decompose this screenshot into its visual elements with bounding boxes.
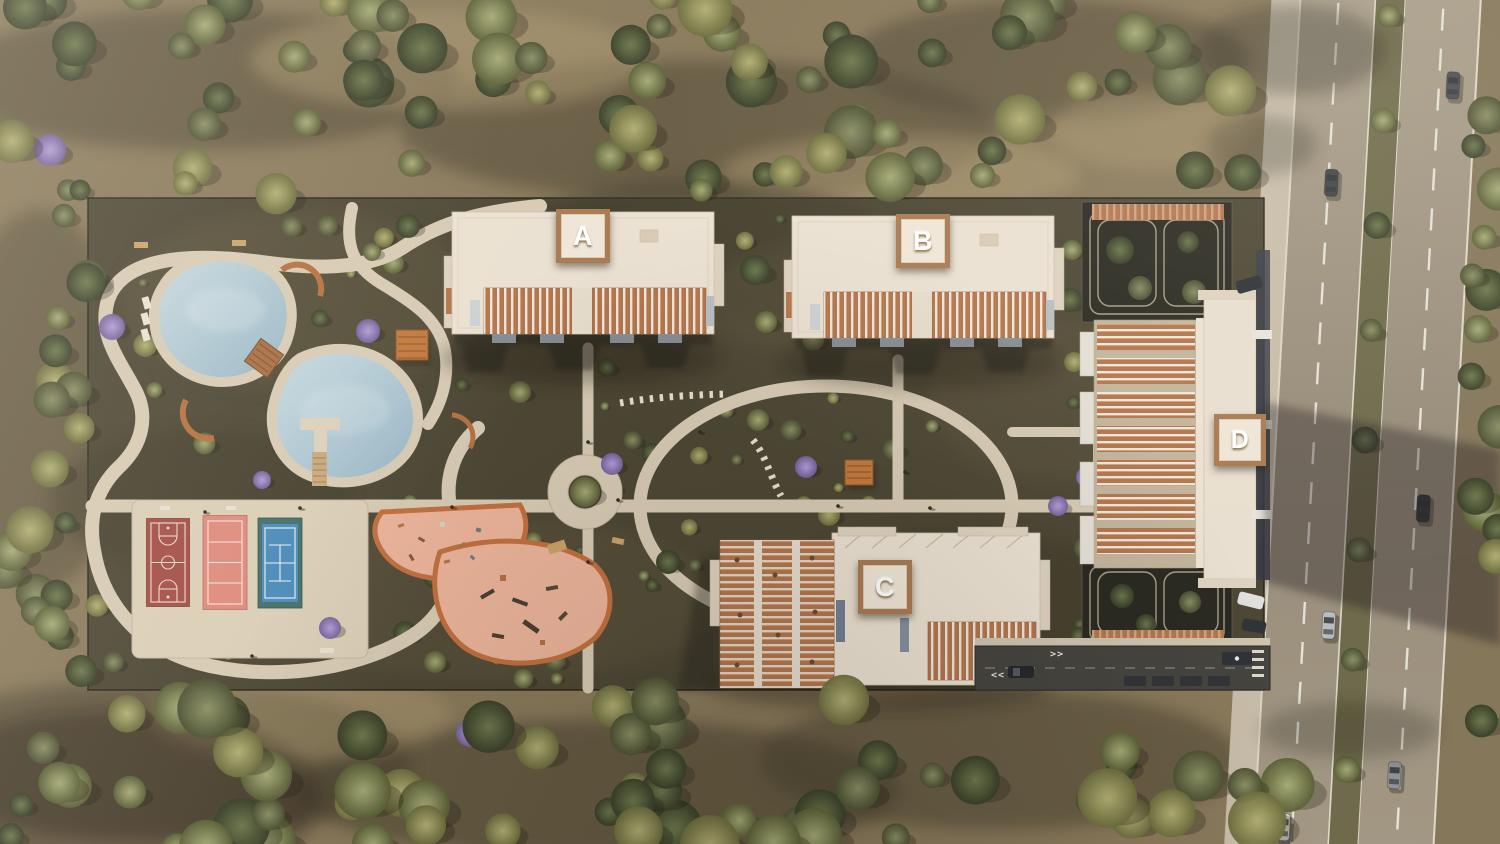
building-label-b[interactable]: B [896,214,950,268]
vehicle-entrance [975,638,1270,690]
pergola-pavilion [396,330,431,366]
site-plan-render: A B C D >> << [0,0,1500,844]
entering-car [1008,666,1034,678]
tennis-court [258,518,302,608]
building-label-a[interactable]: A [556,209,610,263]
pergola-pavilion [845,460,876,490]
rooftop-pergola [484,288,706,334]
car-icon [1321,611,1340,643]
building-letter: A [573,221,593,252]
multi-purpose-court [203,516,247,610]
basketball-court [147,519,190,607]
entry-lane-marking: << [991,671,1005,681]
rooftop-pergola [1097,324,1195,554]
car-icon [1445,72,1464,104]
car-icon [1324,169,1343,201]
masterplan-canvas [0,0,1500,844]
building-letter: B [913,226,933,257]
building-label-d[interactable]: D [1214,414,1266,466]
building-letter: D [1231,426,1250,455]
terrace-rows [720,540,834,688]
exiting-van [1222,652,1252,665]
car-icon [1387,761,1406,793]
building-letter: C [875,572,895,603]
building-label-c[interactable]: C [858,560,912,614]
exit-lane-marking: >> [1050,650,1064,660]
